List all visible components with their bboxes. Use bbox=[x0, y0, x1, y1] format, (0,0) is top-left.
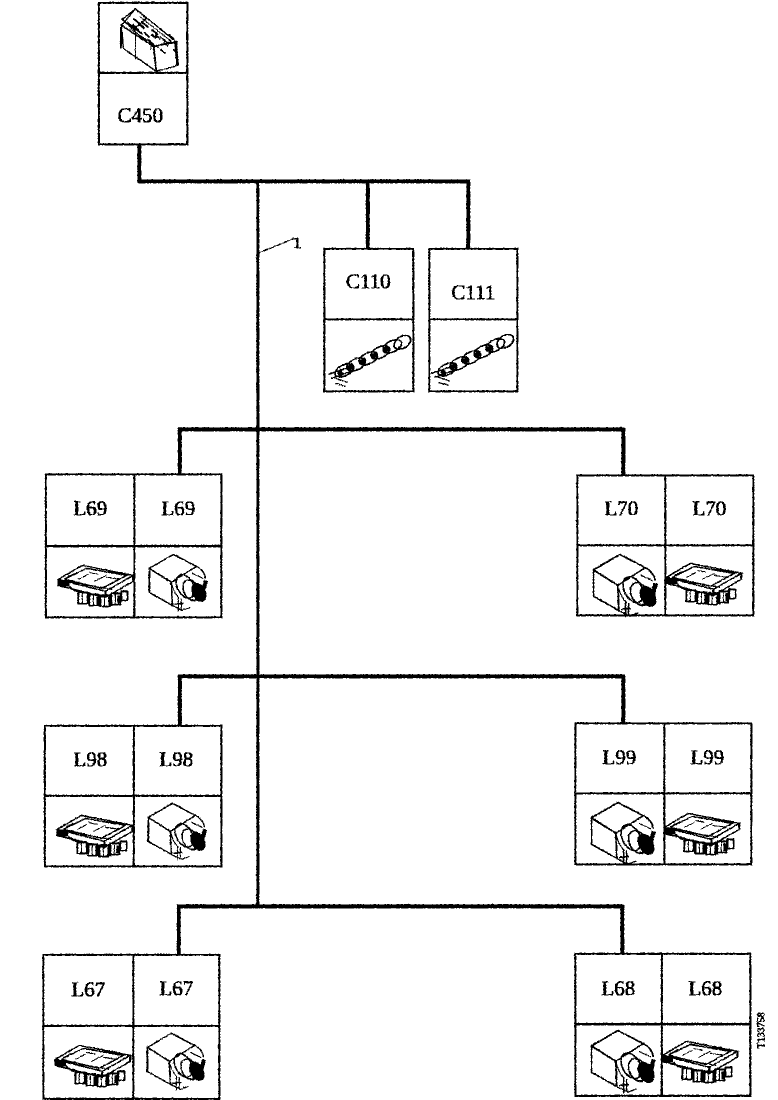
svg-text:L67: L67 bbox=[71, 977, 105, 1001]
svg-text:C110: C110 bbox=[346, 269, 391, 293]
svg-text:L70: L70 bbox=[692, 496, 726, 520]
svg-text:L98: L98 bbox=[159, 747, 193, 771]
svg-text:T133758: T133758 bbox=[756, 1012, 767, 1048]
svg-text:L70: L70 bbox=[604, 496, 638, 520]
svg-text:L99: L99 bbox=[602, 745, 636, 769]
svg-text:L67: L67 bbox=[159, 976, 193, 1000]
svg-text:L68: L68 bbox=[688, 976, 722, 1000]
svg-text:L99: L99 bbox=[690, 745, 724, 769]
svg-text:L98: L98 bbox=[73, 747, 107, 771]
svg-text:1: 1 bbox=[293, 233, 302, 252]
svg-text:L69: L69 bbox=[161, 496, 195, 520]
svg-text:L68: L68 bbox=[601, 976, 635, 1000]
svg-text:C111: C111 bbox=[451, 280, 495, 304]
svg-text:C450: C450 bbox=[117, 103, 163, 127]
svg-text:L69: L69 bbox=[73, 496, 107, 520]
